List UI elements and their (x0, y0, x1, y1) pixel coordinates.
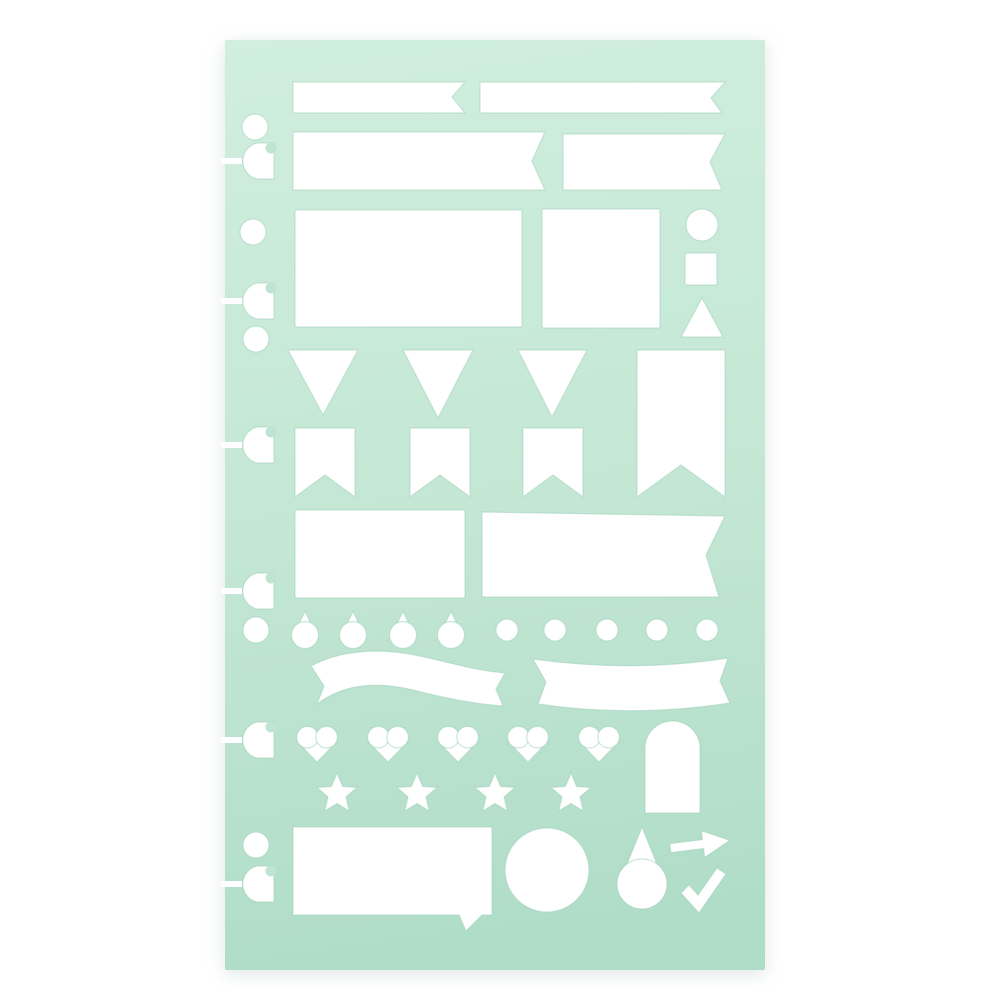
binder-hole-1-cutout-icon (242, 114, 268, 140)
dot-5-cutout-icon (696, 619, 718, 641)
product-photo-stencil (0, 0, 1000, 1000)
banner-large-swallowtail-cutout-icon (482, 512, 725, 597)
banner-medium-swallowtail-cutout-icon (563, 134, 725, 190)
binder-hole-4-cutout-icon (243, 617, 269, 643)
speech-bubble-cutout-icon (293, 827, 492, 931)
rectangle-medium-cutout-icon (295, 510, 465, 598)
circle-large-cutout-icon (505, 828, 589, 912)
dot-4-cutout-icon (646, 619, 668, 641)
banner-small-notched-cutout-icon (293, 82, 465, 113)
binder-hole-3-cutout-icon (243, 326, 269, 352)
dot-3-cutout-icon (596, 619, 618, 641)
ribbon-arc-cutout-icon (533, 658, 730, 711)
dot-1-cutout-icon (496, 619, 518, 641)
dot-2-cutout-icon (544, 619, 566, 641)
rectangle-square-cutout-icon (542, 209, 660, 328)
square-small-cutout-icon (685, 253, 717, 285)
stencil-graphic (0, 0, 1000, 1000)
circle-small-cutout-icon (686, 209, 718, 241)
rectangle-large-cutout-icon (295, 210, 522, 327)
binder-hole-5-cutout-icon (243, 832, 269, 858)
arch-rounded-top-cutout-icon (645, 721, 700, 813)
binder-hole-2-cutout-icon (240, 219, 266, 245)
banner-medium-notched-cutout-icon (293, 132, 545, 190)
banner-small-swallowtail-cutout-icon (480, 82, 725, 113)
